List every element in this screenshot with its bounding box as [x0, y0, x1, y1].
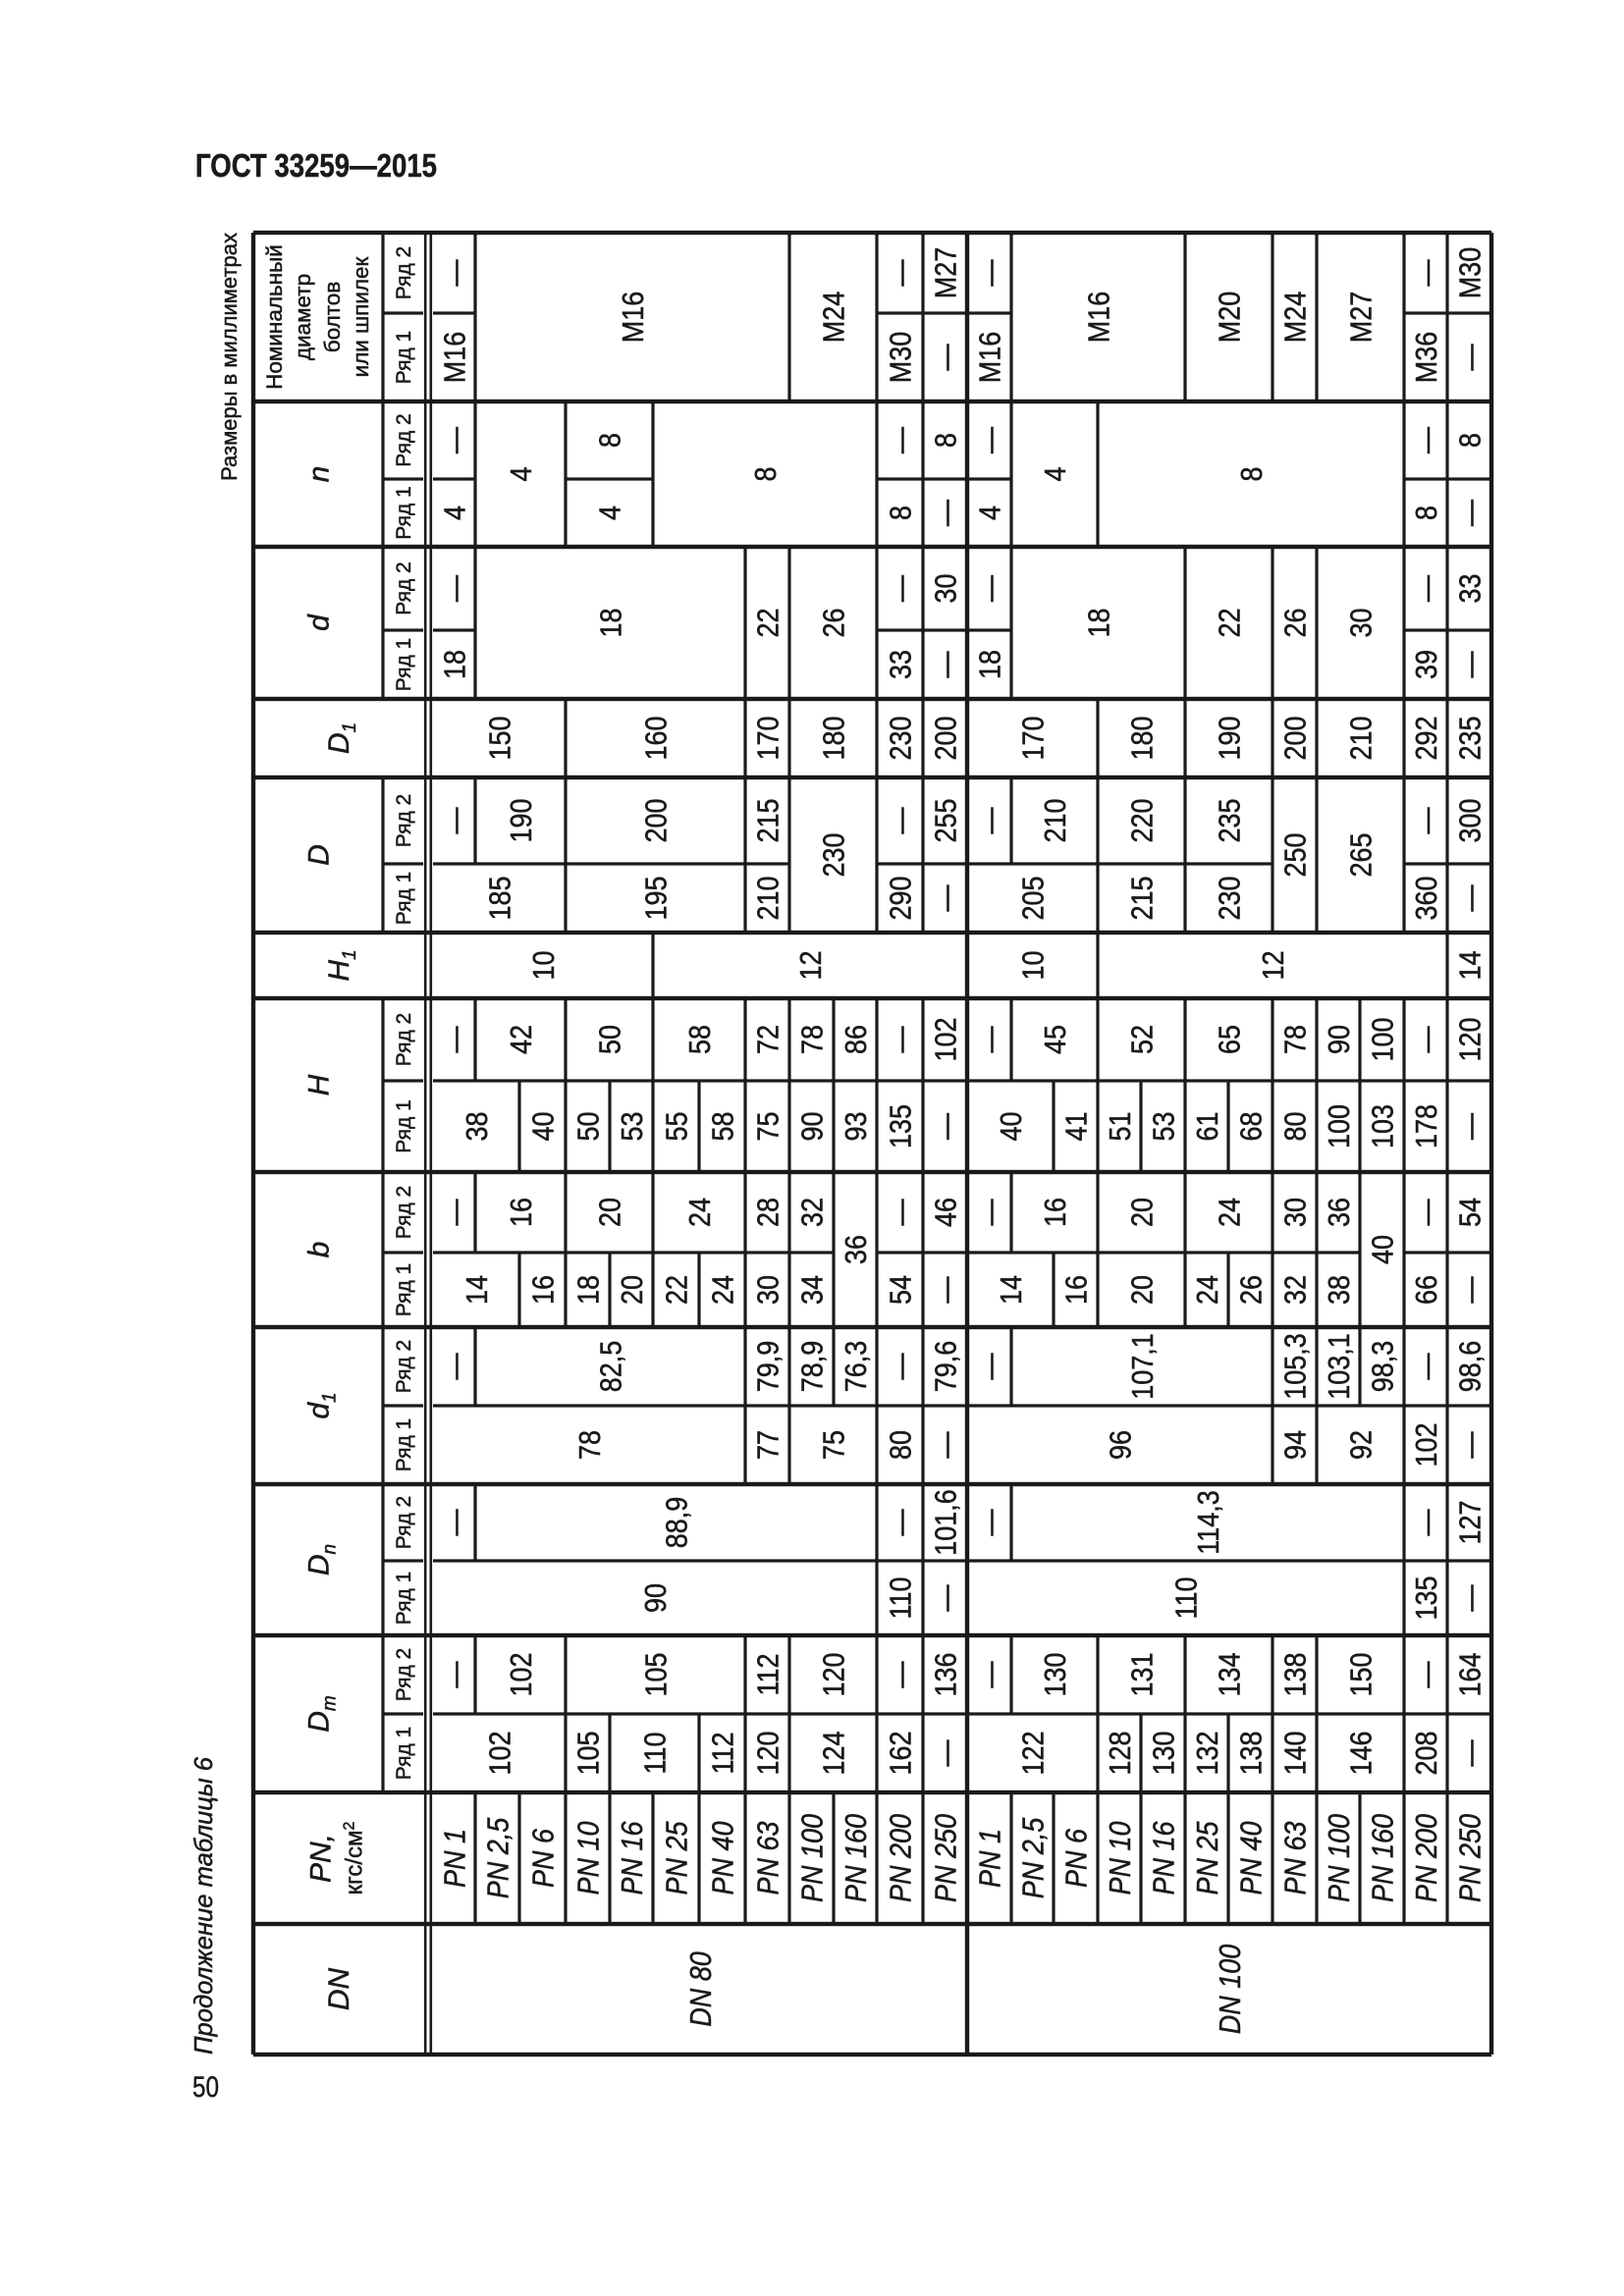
svg-text:42: 42 [504, 1025, 538, 1054]
svg-text:86: 86 [839, 1025, 873, 1054]
svg-text:—: — [973, 1027, 1007, 1053]
svg-text:215: 215 [751, 799, 785, 843]
svg-text:Ряд 1: Ряд 1 [393, 1727, 415, 1780]
svg-text:30: 30 [929, 574, 963, 604]
svg-text:112: 112 [751, 1654, 785, 1696]
svg-text:26: 26 [817, 609, 851, 638]
svg-text:—: — [438, 1354, 472, 1380]
svg-text:—: — [1409, 1027, 1443, 1053]
svg-text:n: n [303, 466, 336, 483]
svg-text:50: 50 [571, 1112, 606, 1142]
svg-text:128: 128 [1103, 1732, 1137, 1776]
svg-text:30: 30 [1278, 1198, 1313, 1227]
svg-text:—: — [884, 1354, 918, 1380]
svg-text:100: 100 [1322, 1104, 1356, 1148]
svg-text:H: H [303, 1074, 336, 1095]
svg-text:4: 4 [973, 506, 1007, 520]
svg-text:16: 16 [526, 1275, 561, 1305]
svg-text:Ряд 1: Ряд 1 [393, 1263, 415, 1316]
svg-text:98,6: 98,6 [1453, 1341, 1488, 1393]
svg-text:Ряд 2: Ряд 2 [393, 1496, 415, 1549]
svg-text:—: — [929, 500, 963, 526]
svg-text:PN 160: PN 160 [839, 1814, 873, 1902]
svg-text:8: 8 [593, 433, 627, 448]
svg-text:Ряд 2: Ряд 2 [393, 1648, 415, 1701]
svg-text:Ряд 1: Ряд 1 [393, 486, 415, 539]
svg-text:Размеры в миллиметрах: Размеры в миллиметрах [217, 233, 242, 481]
svg-text:78: 78 [795, 1025, 830, 1054]
svg-text:20: 20 [615, 1275, 649, 1305]
svg-text:122: 122 [1016, 1732, 1051, 1776]
svg-text:—: — [973, 1200, 1007, 1226]
svg-text:34: 34 [795, 1275, 830, 1305]
svg-text:138: 138 [1234, 1732, 1269, 1776]
svg-text:265: 265 [1344, 833, 1379, 878]
svg-text:75: 75 [751, 1112, 785, 1142]
svg-text:140: 140 [1278, 1732, 1313, 1776]
svg-text:38: 38 [460, 1112, 494, 1142]
svg-text:болтов: болтов [320, 282, 345, 353]
svg-text:77: 77 [751, 1430, 785, 1460]
svg-text:80: 80 [1278, 1112, 1313, 1142]
svg-text:96: 96 [1104, 1430, 1138, 1460]
svg-text:14: 14 [994, 1275, 1028, 1305]
svg-text:М16: М16 [973, 332, 1007, 384]
svg-text:М36: М36 [1409, 332, 1443, 384]
svg-text:132: 132 [1190, 1732, 1224, 1776]
svg-text:16: 16 [1038, 1198, 1072, 1227]
svg-text:130: 130 [1147, 1732, 1181, 1776]
svg-text:М30: М30 [1453, 247, 1488, 299]
svg-text:16: 16 [1059, 1275, 1094, 1305]
svg-text:Ряд 2: Ряд 2 [393, 246, 415, 299]
svg-text:10: 10 [526, 951, 561, 981]
svg-text:12: 12 [793, 951, 828, 981]
svg-text:—: — [884, 1662, 918, 1688]
svg-text:28: 28 [751, 1198, 785, 1227]
svg-text:—: — [1453, 885, 1488, 912]
svg-text:—: — [1409, 1662, 1443, 1688]
svg-text:Ряд 1: Ряд 1 [393, 638, 415, 691]
svg-text:PN 6: PN 6 [526, 1828, 561, 1888]
svg-text:—: — [929, 652, 963, 678]
svg-text:D: D [303, 844, 336, 866]
svg-text:103: 103 [1366, 1104, 1400, 1148]
svg-text:26: 26 [1234, 1275, 1269, 1305]
svg-text:8: 8 [884, 506, 918, 520]
svg-text:Продолжение таблицы 6: Продолжение таблицы 6 [189, 1756, 218, 2055]
svg-text:90: 90 [795, 1112, 830, 1142]
svg-text:79,6: 79,6 [929, 1341, 963, 1393]
svg-text:М30: М30 [884, 332, 918, 384]
svg-text:53: 53 [1147, 1112, 1181, 1142]
svg-text:136: 136 [929, 1653, 963, 1697]
svg-text:PN 40: PN 40 [1234, 1822, 1269, 1896]
svg-text:105: 105 [639, 1653, 674, 1697]
svg-text:51: 51 [1103, 1112, 1137, 1142]
svg-text:102: 102 [1409, 1423, 1443, 1468]
svg-text:190: 190 [504, 799, 538, 843]
svg-text:8: 8 [1234, 467, 1269, 482]
svg-text:Ряд 1: Ряд 1 [393, 1572, 415, 1625]
svg-text:PN 100: PN 100 [1322, 1814, 1356, 1902]
svg-text:PN 25: PN 25 [1190, 1821, 1224, 1896]
svg-text:—: — [1453, 1432, 1488, 1459]
svg-text:18: 18 [1082, 609, 1116, 638]
svg-text:88,9: 88,9 [660, 1497, 694, 1549]
svg-text:Ряд 2: Ряд 2 [393, 413, 415, 466]
svg-text:14: 14 [460, 1275, 494, 1305]
svg-text:PN 63: PN 63 [1278, 1822, 1313, 1896]
svg-text:162: 162 [884, 1732, 918, 1776]
svg-text:36: 36 [839, 1235, 873, 1264]
svg-text:127: 127 [1453, 1501, 1488, 1545]
svg-text:24: 24 [1190, 1275, 1224, 1305]
svg-text:178: 178 [1409, 1104, 1443, 1148]
svg-text:230: 230 [817, 833, 851, 878]
svg-text:16: 16 [504, 1198, 538, 1227]
svg-text:54: 54 [1453, 1198, 1488, 1227]
svg-text:—: — [884, 427, 918, 454]
svg-text:Ряд 1: Ряд 1 [393, 1418, 415, 1471]
svg-text:24: 24 [682, 1198, 717, 1227]
svg-text:164: 164 [1453, 1653, 1488, 1697]
svg-text:—: — [438, 1662, 472, 1688]
svg-text:120: 120 [751, 1732, 785, 1776]
svg-text:12: 12 [1256, 951, 1290, 981]
svg-text:кгс/см2: кгс/см2 [342, 1822, 368, 1896]
svg-text:—: — [973, 808, 1007, 834]
svg-text:101,6: 101,6 [929, 1489, 963, 1556]
svg-text:50: 50 [192, 2071, 219, 2104]
svg-text:18: 18 [973, 650, 1007, 679]
svg-text:—: — [438, 575, 472, 602]
svg-text:PN 1: PN 1 [438, 1829, 472, 1888]
svg-text:26: 26 [1278, 609, 1313, 638]
svg-text:18: 18 [438, 650, 472, 679]
svg-text:—: — [884, 1027, 918, 1053]
svg-text:135: 135 [1409, 1576, 1443, 1621]
svg-text:146: 146 [1344, 1732, 1379, 1776]
svg-text:PN 160: PN 160 [1366, 1814, 1400, 1902]
svg-text:d: d [303, 614, 336, 631]
svg-text:PN 16: PN 16 [615, 1821, 649, 1896]
svg-text:Ряд 1: Ряд 1 [393, 331, 415, 384]
svg-text:b: b [303, 1242, 336, 1258]
svg-text:—: — [1453, 345, 1488, 371]
svg-text:160: 160 [639, 717, 674, 761]
svg-text:124: 124 [817, 1732, 851, 1776]
svg-text:—: — [973, 427, 1007, 454]
svg-text:134: 134 [1213, 1653, 1247, 1697]
svg-text:PN 63: PN 63 [751, 1822, 785, 1896]
svg-text:—: — [438, 260, 472, 287]
svg-text:24: 24 [706, 1275, 740, 1305]
svg-text:PN 2,5: PN 2,5 [481, 1817, 515, 1898]
svg-text:20: 20 [1125, 1275, 1160, 1305]
svg-text:20: 20 [1125, 1198, 1160, 1227]
svg-text:360: 360 [1409, 877, 1443, 921]
svg-text:—: — [438, 427, 472, 454]
svg-text:Ряд 2: Ряд 2 [393, 1186, 415, 1239]
svg-text:—: — [1453, 1740, 1488, 1767]
svg-text:М24: М24 [1278, 292, 1313, 344]
svg-text:103,1: 103,1 [1322, 1333, 1356, 1400]
svg-text:50: 50 [593, 1025, 627, 1054]
svg-text:220: 220 [1125, 799, 1160, 843]
svg-text:150: 150 [1344, 1653, 1379, 1697]
svg-text:—: — [884, 808, 918, 834]
svg-text:Ряд 1: Ряд 1 [393, 872, 415, 925]
svg-text:PN 1: PN 1 [973, 1829, 1007, 1888]
svg-text:78: 78 [572, 1430, 607, 1460]
svg-text:79,9: 79,9 [751, 1341, 785, 1393]
svg-text:170: 170 [1016, 717, 1051, 761]
svg-text:250: 250 [1278, 833, 1313, 878]
svg-text:75: 75 [817, 1430, 851, 1460]
svg-text:PN 10: PN 10 [1103, 1822, 1137, 1896]
svg-text:DN 100: DN 100 [1213, 1945, 1247, 2035]
svg-text:—: — [1409, 1510, 1443, 1536]
svg-text:диаметр: диаметр [291, 274, 315, 360]
svg-text:М20: М20 [1213, 292, 1247, 344]
svg-text:180: 180 [817, 717, 851, 761]
svg-text:54: 54 [884, 1275, 918, 1305]
svg-text:Номинальный: Номинальный [262, 244, 287, 390]
svg-text:—: — [1453, 652, 1488, 678]
svg-text:190: 190 [1213, 717, 1247, 761]
svg-text:102: 102 [483, 1732, 517, 1776]
svg-text:М27: М27 [929, 247, 963, 299]
svg-text:18: 18 [571, 1275, 606, 1305]
svg-text:58: 58 [706, 1112, 740, 1142]
svg-text:—: — [438, 1027, 472, 1053]
svg-text:22: 22 [1213, 609, 1247, 638]
svg-text:—: — [884, 1200, 918, 1226]
svg-text:—: — [929, 1113, 963, 1140]
svg-text:—: — [1453, 1277, 1488, 1304]
svg-text:210: 210 [1038, 799, 1072, 843]
svg-text:78,9: 78,9 [795, 1341, 830, 1393]
svg-text:102: 102 [504, 1653, 538, 1697]
svg-text:185: 185 [483, 877, 517, 921]
svg-text:215: 215 [1125, 877, 1160, 921]
svg-text:39: 39 [1409, 650, 1443, 679]
svg-text:Ряд 2: Ряд 2 [393, 1013, 415, 1066]
svg-text:210: 210 [1344, 717, 1379, 761]
svg-text:PN 200: PN 200 [884, 1814, 918, 1902]
svg-text:18: 18 [594, 609, 628, 638]
svg-text:—: — [973, 1662, 1007, 1688]
svg-text:8: 8 [748, 467, 783, 482]
svg-text:М24: М24 [817, 292, 851, 344]
svg-text:—: — [438, 808, 472, 834]
svg-text:195: 195 [639, 877, 674, 921]
svg-text:4: 4 [438, 506, 472, 520]
svg-text:110: 110 [884, 1577, 918, 1620]
svg-text:8: 8 [1409, 506, 1443, 520]
svg-text:33: 33 [884, 650, 918, 679]
svg-text:PN 6: PN 6 [1059, 1828, 1094, 1888]
svg-text:—: — [438, 1200, 472, 1226]
svg-text:PN 16: PN 16 [1147, 1821, 1181, 1896]
svg-text:PN 2,5: PN 2,5 [1016, 1817, 1051, 1898]
svg-text:—: — [1409, 427, 1443, 454]
svg-text:112: 112 [706, 1733, 740, 1775]
svg-text:292: 292 [1409, 717, 1443, 761]
svg-text:33: 33 [1453, 574, 1488, 604]
svg-text:—: — [973, 1354, 1007, 1380]
svg-text:—: — [929, 1432, 963, 1459]
svg-text:М27: М27 [1344, 292, 1379, 344]
svg-text:150: 150 [483, 717, 517, 761]
svg-text:92: 92 [1344, 1430, 1379, 1460]
svg-text:110: 110 [1169, 1577, 1204, 1620]
svg-text:52: 52 [1125, 1025, 1160, 1054]
svg-text:—: — [929, 345, 963, 371]
svg-text:120: 120 [817, 1653, 851, 1697]
svg-text:90: 90 [1322, 1025, 1356, 1054]
svg-text:255: 255 [929, 799, 963, 843]
svg-text:45: 45 [1038, 1025, 1072, 1054]
svg-text:30: 30 [1344, 609, 1379, 638]
svg-text:—: — [973, 1510, 1007, 1536]
svg-text:80: 80 [884, 1430, 918, 1460]
svg-text:36: 36 [1322, 1198, 1356, 1227]
svg-text:76,3: 76,3 [839, 1341, 873, 1393]
svg-text:М16: М16 [1082, 292, 1116, 344]
svg-text:—: — [1409, 1354, 1443, 1380]
svg-text:—: — [929, 885, 963, 912]
svg-text:235: 235 [1453, 717, 1488, 761]
svg-text:66: 66 [1409, 1275, 1443, 1305]
svg-text:PN 100: PN 100 [795, 1814, 830, 1902]
svg-text:DN 80: DN 80 [683, 1951, 718, 2027]
svg-text:114,3: 114,3 [1191, 1490, 1225, 1555]
svg-text:300: 300 [1453, 799, 1488, 843]
svg-text:131: 131 [1125, 1653, 1160, 1697]
svg-text:—: — [1409, 1200, 1443, 1226]
svg-text:41: 41 [1059, 1112, 1094, 1142]
svg-text:8: 8 [1453, 433, 1488, 448]
svg-text:102: 102 [929, 1018, 963, 1062]
svg-text:—: — [884, 260, 918, 287]
svg-text:PN 25: PN 25 [660, 1821, 694, 1896]
svg-text:46: 46 [929, 1198, 963, 1227]
svg-text:98,3: 98,3 [1366, 1341, 1400, 1393]
svg-text:120: 120 [1453, 1018, 1488, 1062]
svg-text:68: 68 [1234, 1112, 1269, 1142]
svg-text:—: — [929, 1277, 963, 1304]
svg-text:61: 61 [1190, 1112, 1224, 1142]
svg-text:22: 22 [660, 1275, 694, 1305]
svg-text:—: — [973, 575, 1007, 602]
svg-text:230: 230 [884, 717, 918, 761]
svg-text:10: 10 [1016, 951, 1051, 981]
svg-text:4: 4 [593, 506, 627, 520]
svg-text:200: 200 [929, 717, 963, 761]
svg-text:—: — [884, 1510, 918, 1536]
svg-text:—: — [973, 260, 1007, 287]
svg-text:110: 110 [638, 1733, 673, 1775]
svg-text:105,3: 105,3 [1278, 1333, 1313, 1400]
svg-text:94: 94 [1278, 1430, 1313, 1460]
svg-text:PN 10: PN 10 [571, 1822, 606, 1896]
svg-text:Ряд 2: Ряд 2 [393, 794, 415, 847]
svg-text:Ряд 2: Ряд 2 [393, 1340, 415, 1393]
svg-text:М16: М16 [616, 292, 650, 344]
svg-text:93: 93 [839, 1112, 873, 1142]
svg-text:208: 208 [1409, 1732, 1443, 1776]
svg-text:—: — [929, 1585, 963, 1612]
svg-text:PN,: PN, [305, 1834, 338, 1883]
svg-text:8: 8 [929, 433, 963, 448]
svg-text:170: 170 [751, 717, 785, 761]
svg-text:200: 200 [1278, 717, 1313, 761]
svg-text:4: 4 [504, 467, 538, 482]
svg-text:72: 72 [751, 1025, 785, 1054]
svg-text:58: 58 [682, 1025, 717, 1054]
svg-text:—: — [884, 575, 918, 602]
svg-text:30: 30 [751, 1275, 785, 1305]
svg-text:М16: М16 [438, 332, 472, 384]
svg-text:Ряд 2: Ряд 2 [393, 561, 415, 614]
svg-text:210: 210 [751, 877, 785, 921]
svg-text:—: — [1409, 575, 1443, 602]
svg-text:105: 105 [571, 1732, 606, 1776]
svg-text:Ряд 1: Ряд 1 [393, 1099, 415, 1152]
svg-text:DN: DN [323, 1968, 355, 2011]
svg-text:78: 78 [1278, 1025, 1313, 1054]
svg-text:PN 40: PN 40 [706, 1822, 740, 1896]
svg-text:205: 205 [1016, 877, 1051, 921]
svg-text:100: 100 [1366, 1018, 1400, 1062]
svg-text:или шпилек: или шпилек [349, 256, 373, 377]
svg-text:—: — [1453, 1113, 1488, 1140]
svg-text:200: 200 [639, 799, 674, 843]
svg-text:—: — [1409, 808, 1443, 834]
svg-text:235: 235 [1213, 799, 1247, 843]
svg-text:135: 135 [884, 1104, 918, 1148]
svg-text:130: 130 [1038, 1653, 1072, 1697]
svg-text:65: 65 [1213, 1025, 1247, 1054]
svg-text:40: 40 [1366, 1235, 1400, 1264]
svg-text:—: — [1453, 500, 1488, 526]
svg-text:107,1: 107,1 [1125, 1333, 1160, 1400]
svg-text:22: 22 [751, 609, 785, 638]
svg-text:—: — [438, 1510, 472, 1536]
svg-text:PN 250: PN 250 [1453, 1814, 1488, 1902]
svg-text:4: 4 [1038, 467, 1072, 482]
svg-text:82,5: 82,5 [594, 1341, 628, 1393]
svg-text:ГОСТ 33259—2015: ГОСТ 33259—2015 [195, 147, 437, 184]
svg-text:38: 38 [1322, 1275, 1356, 1305]
svg-text:40: 40 [526, 1112, 561, 1142]
svg-text:32: 32 [1278, 1275, 1313, 1305]
svg-text:24: 24 [1213, 1198, 1247, 1227]
svg-text:20: 20 [593, 1198, 627, 1227]
svg-text:PN 200: PN 200 [1409, 1814, 1443, 1902]
svg-text:230: 230 [1213, 877, 1247, 921]
svg-text:290: 290 [884, 877, 918, 921]
svg-text:—: — [929, 1740, 963, 1767]
svg-text:40: 40 [994, 1112, 1028, 1142]
svg-text:—: — [1453, 1585, 1488, 1612]
svg-text:55: 55 [660, 1112, 694, 1142]
svg-text:53: 53 [615, 1112, 649, 1142]
svg-text:138: 138 [1278, 1653, 1313, 1697]
svg-text:180: 180 [1125, 717, 1160, 761]
